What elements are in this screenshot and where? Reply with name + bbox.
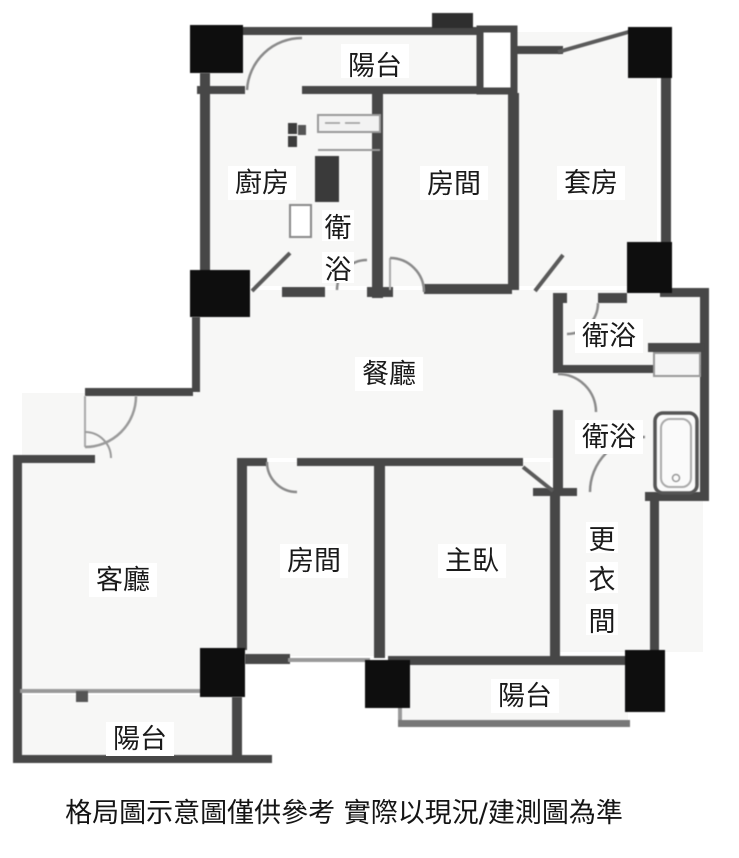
- wall-segment: [200, 73, 210, 272]
- room-label-living: 客廳: [96, 565, 150, 596]
- column: [200, 648, 245, 697]
- floor-area: [205, 32, 657, 286]
- wall-segment: [374, 458, 385, 658]
- room-label-dressing-char1: 更: [589, 525, 616, 556]
- wall-segment: [508, 93, 519, 290]
- wall-segment: [232, 697, 242, 763]
- room-label-bath-upper: 衛浴: [582, 321, 636, 352]
- wall-segment: [237, 458, 247, 650]
- water-heater: [315, 156, 339, 202]
- balcony-edge-line: [398, 720, 630, 727]
- stove-burner: [298, 125, 306, 135]
- wall-segment: [247, 458, 267, 466]
- wall-segment: [13, 455, 22, 763]
- disclaimer-caption: 格局圖示意圖僅供參考 實際以現況/建測圖為準: [65, 798, 623, 829]
- room-label-bath-vestibule-char1: 衛: [325, 213, 352, 244]
- wall-segment: [424, 284, 512, 294]
- wall-segment: [388, 656, 628, 665]
- stove-burner: [288, 123, 297, 134]
- column: [365, 660, 410, 708]
- room-label-master: 主臥: [445, 546, 499, 577]
- wall-segment: [197, 86, 245, 94]
- room-label-bath-lower: 衛浴: [582, 422, 636, 453]
- wall-segment: [297, 458, 523, 466]
- wall-segment: [650, 498, 659, 655]
- window-tick: [76, 691, 88, 702]
- wall-stub: [432, 13, 473, 28]
- room-label-balcony-bottom-right: 陽台: [498, 681, 552, 712]
- room-label-balcony-top: 陽台: [348, 51, 402, 82]
- column: [190, 25, 243, 73]
- vanity-counter: [648, 343, 705, 352]
- column: [625, 650, 665, 712]
- wall-segment: [245, 654, 290, 664]
- wall-segment: [700, 288, 709, 500]
- vanity-basin: [654, 353, 700, 376]
- room-label-kitchen: 廚房: [235, 168, 289, 199]
- wall-segment: [282, 287, 325, 297]
- wall-segment: [598, 293, 627, 303]
- column: [628, 27, 672, 78]
- column: [627, 242, 672, 293]
- kitchen-sink: [290, 205, 311, 237]
- wall-segment: [661, 75, 671, 245]
- wall-segment: [302, 86, 480, 94]
- room-label-balcony-bottom-left: 陽台: [113, 724, 167, 755]
- room-label-bedroom-bottom: 房間: [287, 546, 341, 577]
- room-label-suite: 套房: [564, 168, 618, 199]
- wall-shaft: [480, 29, 514, 91]
- room-label-dining: 餐廳: [362, 359, 416, 390]
- wall-segment: [550, 488, 560, 658]
- window-line: [288, 658, 370, 662]
- window-line: [20, 689, 202, 693]
- wall-segment: [533, 488, 577, 496]
- floor-plan-page: 陽台 廚房 房間 套房 衛 浴 衛浴 衛浴 餐廳 客廳 房間 主臥 更 衣 間 …: [0, 0, 739, 858]
- column: [190, 270, 250, 317]
- wall-segment: [553, 410, 563, 493]
- wall-segment: [513, 46, 563, 54]
- stove-burner: [288, 136, 297, 147]
- room-label-dressing-char3: 間: [589, 607, 616, 638]
- wall-segment: [85, 388, 193, 396]
- room-label-dressing-char2: 衣: [589, 565, 616, 596]
- room-label-bedroom-top: 房間: [427, 169, 481, 200]
- wall-segment: [553, 297, 563, 367]
- room-label-bath-vestibule-char2: 浴: [325, 255, 352, 286]
- wall-segment: [13, 455, 95, 463]
- wall-segment: [192, 317, 200, 392]
- floor-area: [22, 393, 237, 689]
- floor-plan: 陽台 廚房 房間 套房 衛 浴 衛浴 衛浴 餐廳 客廳 房間 主臥 更 衣 間 …: [0, 0, 739, 858]
